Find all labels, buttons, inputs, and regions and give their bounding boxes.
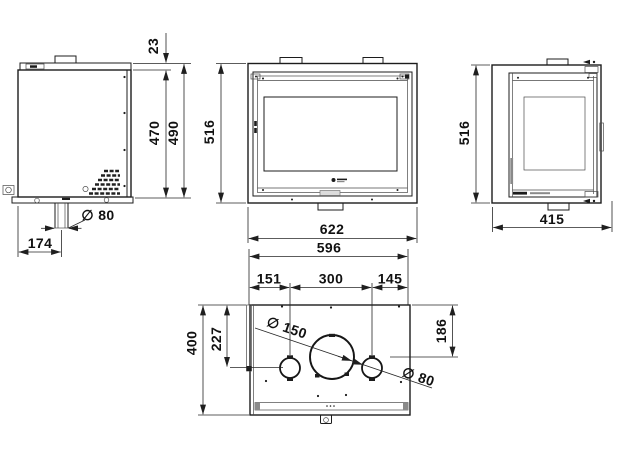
flue-outlet-circle	[310, 334, 354, 379]
dim-overall-height: 490	[135, 64, 191, 198]
dim-label-300: 300	[319, 271, 344, 287]
dim-label-flue-diameter: ∅ 150	[265, 313, 309, 341]
dim-collar-height: 23	[133, 33, 191, 64]
side-left-base-plate	[12, 197, 133, 203]
dim-center-segment: 300	[290, 271, 372, 356]
front-bottom-vent	[320, 191, 340, 196]
dim-right-segment: 145	[373, 271, 407, 288]
dim-overall-width: 622	[248, 207, 417, 243]
fireplace-insert-drawing: 23 470 490 ∅ 80 174	[0, 0, 624, 460]
dim-flue-axis-depth: 186	[390, 305, 458, 357]
dim-label-470: 470	[146, 121, 162, 146]
dim-label-23: 23	[145, 38, 161, 54]
dim-label-186: 186	[433, 319, 449, 344]
front-door-frame	[253, 72, 412, 196]
side-right-bottom-tab	[548, 203, 569, 210]
side-left-base-bolts	[35, 198, 109, 203]
dim-label-145: 145	[378, 271, 403, 287]
front-hinge-marks	[254, 121, 257, 133]
front-door-inner	[258, 76, 408, 193]
side-left-flue-collar	[55, 56, 76, 63]
front-view	[248, 58, 417, 211]
top-left-flange-foot	[247, 366, 252, 371]
side-left-knob	[83, 186, 88, 191]
dim-label-516-front: 516	[201, 120, 217, 145]
dim-label-inlet-dia-top: ∅ 80	[400, 364, 437, 390]
side-left-vent-grille	[89, 171, 120, 194]
front-bottom-tab	[318, 203, 343, 210]
side-view-left	[3, 56, 133, 228]
dim-label-151: 151	[257, 271, 282, 287]
top-left-flange	[247, 305, 252, 371]
dim-left-segment: 151	[250, 271, 289, 288]
side-left-body	[18, 70, 131, 197]
side-right-panel	[524, 97, 585, 170]
dim-air-inlet-diameter-side: ∅ 80	[41, 207, 115, 228]
air-inlet-circle-left	[280, 355, 300, 381]
technical-drawing: 23 470 490 ∅ 80 174	[0, 0, 624, 460]
front-corner-fittings	[251, 74, 409, 79]
dim-label-516-right: 516	[456, 121, 472, 146]
front-glass	[264, 97, 397, 171]
side-right-door-frame	[509, 73, 597, 197]
dim-overall-depth-right: 415	[493, 201, 613, 232]
dim-label-596: 596	[317, 240, 342, 256]
dim-label-400: 400	[184, 331, 200, 356]
dim-label-415: 415	[540, 211, 565, 227]
top-front-strip	[255, 403, 408, 411]
front-top-tab-right	[363, 58, 383, 64]
dim-total-depth: 400	[184, 305, 250, 415]
front-top-tab-left	[280, 58, 302, 64]
front-outer-frame	[248, 64, 417, 204]
side-left-top-latch	[26, 64, 44, 69]
side-left-air-inlet-duct	[55, 203, 68, 228]
side-left-wall-bracket	[3, 186, 14, 195]
dim-label-490: 490	[165, 121, 181, 146]
dim-label-227: 227	[208, 327, 224, 352]
dim-label-174: 174	[28, 235, 53, 251]
dim-label-622: 622	[320, 221, 345, 237]
dim-right-height: 516	[456, 65, 490, 203]
side-left-panel-screws	[123, 76, 125, 187]
side-view-right	[492, 59, 603, 210]
dim-label-inlet-dia-side: ∅ 80	[81, 207, 114, 223]
section-mark-top	[583, 60, 595, 64]
top-front-clip	[321, 415, 332, 424]
air-inlet-circle-right	[362, 355, 382, 381]
front-screws	[262, 78, 399, 201]
dim-front-height: 516	[201, 64, 246, 204]
side-right-top-tab	[547, 59, 568, 65]
brand-logo	[332, 178, 348, 182]
